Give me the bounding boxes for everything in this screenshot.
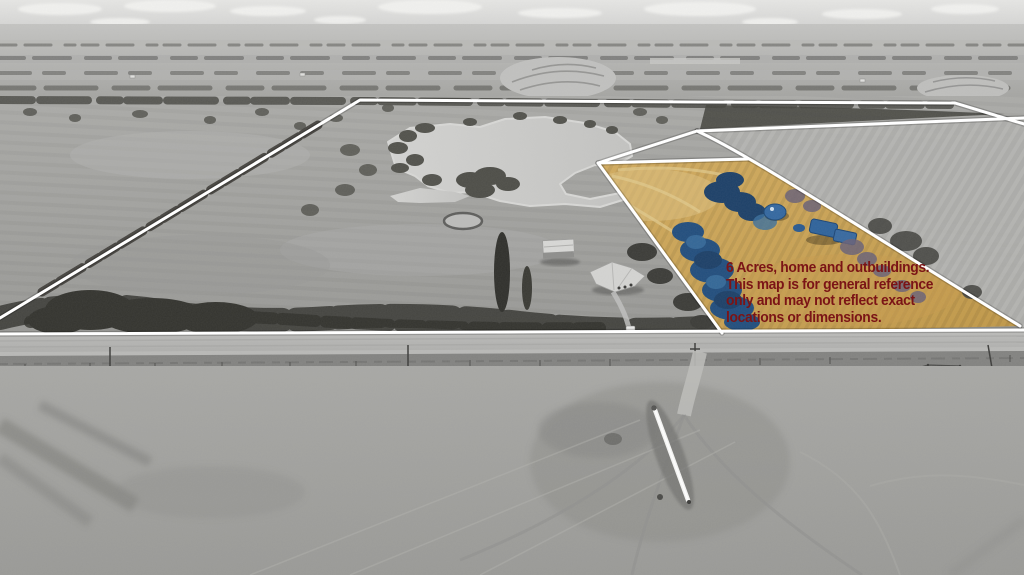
annotation-line-2: This map is for general reference bbox=[726, 277, 954, 294]
annotation-line-1: 6 Acres, home and outbuildings. bbox=[726, 260, 954, 277]
annotation-line-3: only and may not reflect exact bbox=[726, 293, 954, 310]
annotation-text-block: 6 Acres, home and outbuildings. This map… bbox=[726, 260, 954, 326]
aerial-photo: 6 Acres, home and outbuildings. This map… bbox=[0, 0, 1024, 575]
annotation-line-4: locations or dimensions. bbox=[726, 310, 954, 327]
